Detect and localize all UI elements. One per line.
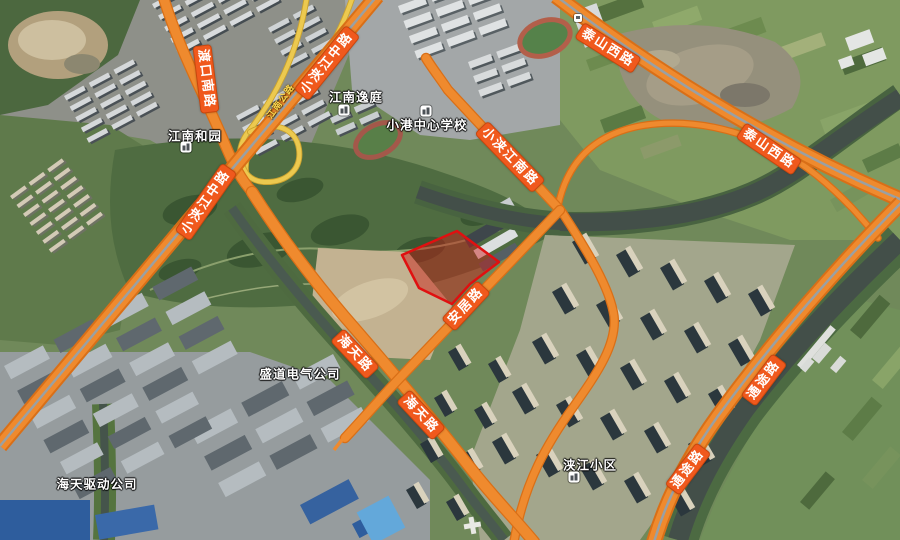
building-icon-jiangnan-yiting[interactable] xyxy=(339,105,350,116)
bus-stop-icon[interactable] xyxy=(574,14,582,22)
building-icon-xiaogang-central-school[interactable] xyxy=(421,106,432,117)
poi-label-shengdao-electric-company[interactable]: 盛道电气公司 xyxy=(259,364,340,383)
building-icon-jiajiang-residential-area[interactable] xyxy=(569,472,580,483)
poi-label-jiangnan-heyuan[interactable]: 江南和园 xyxy=(168,126,222,145)
poi-label-xiaogang-central-school[interactable]: 小港中心学校 xyxy=(386,115,467,134)
satellite-imagery-layer xyxy=(0,0,900,540)
satellite-map-canvas[interactable]: 泰山西路泰山西路通途路通途路小浃江中路小浃江中路小浃江南路安居路海天路海天路渡口… xyxy=(0,0,900,540)
poi-label-jiangnan-yiting[interactable]: 江南逸庭 xyxy=(329,87,383,106)
building-icon-jiangnan-heyuan[interactable] xyxy=(181,142,192,153)
poi-label-haitian-drive-company[interactable]: 海天驱动公司 xyxy=(56,474,137,493)
